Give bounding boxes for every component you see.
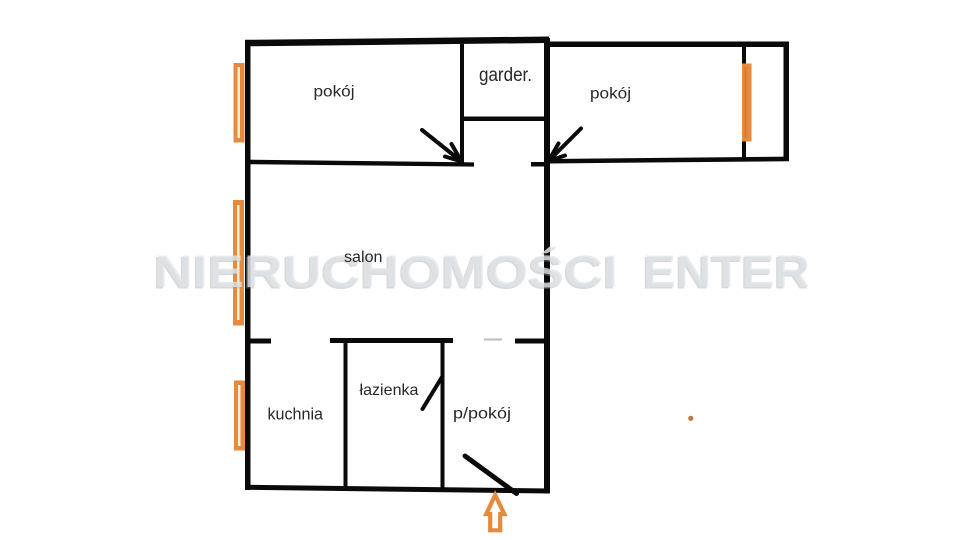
svg-text:garder.: garder. [479, 65, 532, 86]
svg-text:pokój: pokój [590, 86, 631, 103]
svg-text:salon: salon [344, 249, 383, 266]
svg-text:łazienka: łazienka [360, 382, 419, 399]
svg-text:NIERUCHOMOŚCI: NIERUCHOMOŚCI [154, 245, 618, 297]
svg-text:ENTER: ENTER [643, 246, 810, 297]
svg-text:pokój: pokój [314, 84, 355, 101]
svg-text:kuchnia: kuchnia [268, 405, 324, 424]
svg-text:p/pokój: p/pokój [453, 406, 511, 423]
